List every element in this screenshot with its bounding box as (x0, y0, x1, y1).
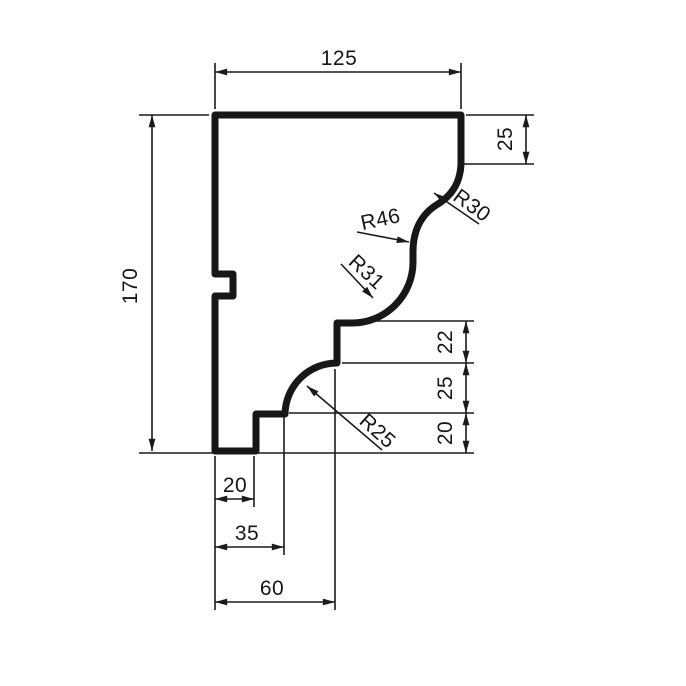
dimension-label-left-height: 170 (119, 268, 142, 305)
dimension-label-35: 35 (235, 522, 259, 545)
technical-profile-drawing: 125 170 25 22 25 20 20 35 60 R30 R46 R31… (0, 0, 686, 686)
dimension-label-25-right: 25 (434, 376, 457, 400)
radius-label-r46: R46 (359, 204, 403, 235)
drawing-canvas: 125 170 25 22 25 20 20 35 60 R30 R46 R31… (0, 0, 686, 686)
molding-profile-outline (215, 115, 461, 451)
dimension-label-top-width: 125 (321, 47, 358, 70)
radius-label-r25: R25 (355, 409, 400, 453)
radius-label-r31: R31 (344, 250, 389, 294)
dimension-label-right-top: 25 (494, 127, 517, 151)
dimension-label-22: 22 (434, 330, 457, 354)
dimension-label-20-right: 20 (434, 421, 457, 445)
dimension-label-60: 60 (260, 577, 284, 600)
dimension-label-20-bottom: 20 (223, 474, 247, 497)
